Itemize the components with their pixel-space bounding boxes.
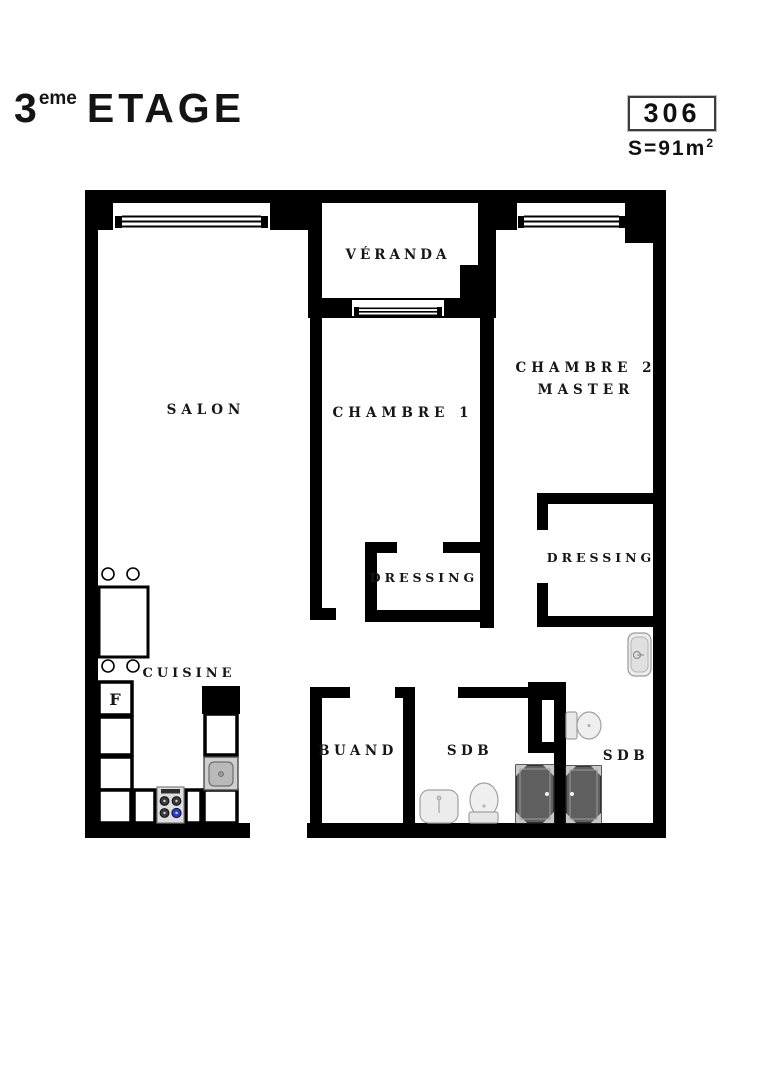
room-label-cuisine: CUISINE: [142, 666, 235, 681]
wall-segment: [480, 228, 494, 628]
wall-segment: [625, 203, 666, 243]
kitchen-cabinet: [99, 717, 132, 755]
kitchen-sink: [204, 757, 238, 790]
wall-segment: [537, 493, 653, 504]
kitchen-stool: [102, 568, 114, 580]
washbasin-sdb1: [420, 790, 458, 823]
toilet-sdb1: [469, 783, 498, 823]
wall-segment: [310, 608, 336, 620]
room-label-sdb2: SDB: [603, 748, 649, 764]
chambre2-window: [517, 203, 625, 230]
wall-segment: [85, 190, 98, 838]
room-label-dressing2: DRESSING: [547, 550, 655, 565]
duct-shaft-opening: [542, 700, 554, 742]
room-label-veranda: VÉRANDA: [345, 247, 451, 263]
wall-segment: [310, 318, 322, 620]
kitchen-cabinet: [134, 790, 155, 823]
room-label-salon: SALON: [167, 402, 246, 418]
kitchen-stool: [102, 660, 114, 672]
kitchen-cabinet: [205, 714, 237, 755]
room-label-dressing1: DRESSING: [370, 570, 478, 585]
room-label-chambre2-line2: MASTER: [538, 382, 635, 398]
hob: [157, 787, 184, 823]
wall-segment: [307, 823, 666, 838]
wall-segment: [403, 687, 415, 823]
wall-segment: [443, 542, 482, 553]
kitchen-cabinet: [204, 790, 237, 823]
floor-plan: VÉRANDA SALON CHAMBRE 1 CHAMBRE 2 MASTER…: [0, 0, 768, 1066]
room-label-chambre2-line1: CHAMBRE 2: [516, 360, 657, 376]
fridge-label: F: [109, 690, 121, 709]
kitchen-stool: [127, 568, 139, 580]
wall-segment: [537, 493, 548, 530]
wall-segment: [554, 753, 566, 823]
shower-left: [516, 765, 554, 823]
kitchen-stool: [127, 660, 139, 672]
wall-segment: [365, 610, 482, 622]
wall-segment: [653, 190, 666, 838]
room-label-chambre1: CHAMBRE 1: [333, 405, 474, 421]
room-label-sdb1: SDB: [447, 743, 493, 759]
kitchen-table: [99, 587, 148, 657]
wall-segment: [494, 203, 517, 230]
wall-segment: [98, 203, 115, 230]
kitchen-tall-unit: [202, 686, 240, 714]
salon-window: [113, 203, 270, 230]
shower-right: [566, 766, 601, 823]
washbasin-master: [628, 633, 651, 676]
kitchen-cabinet: [99, 757, 132, 790]
wall-segment: [85, 190, 666, 203]
wall-segment: [537, 616, 653, 627]
kitchen-cabinet: [99, 790, 131, 823]
wall-segment: [85, 823, 250, 838]
walls: [85, 190, 666, 838]
veranda-window: [352, 300, 444, 316]
toilet-master: [566, 712, 601, 739]
room-label-buanderie: BUAND: [318, 743, 398, 759]
kitchen-cabinet: [186, 790, 201, 823]
